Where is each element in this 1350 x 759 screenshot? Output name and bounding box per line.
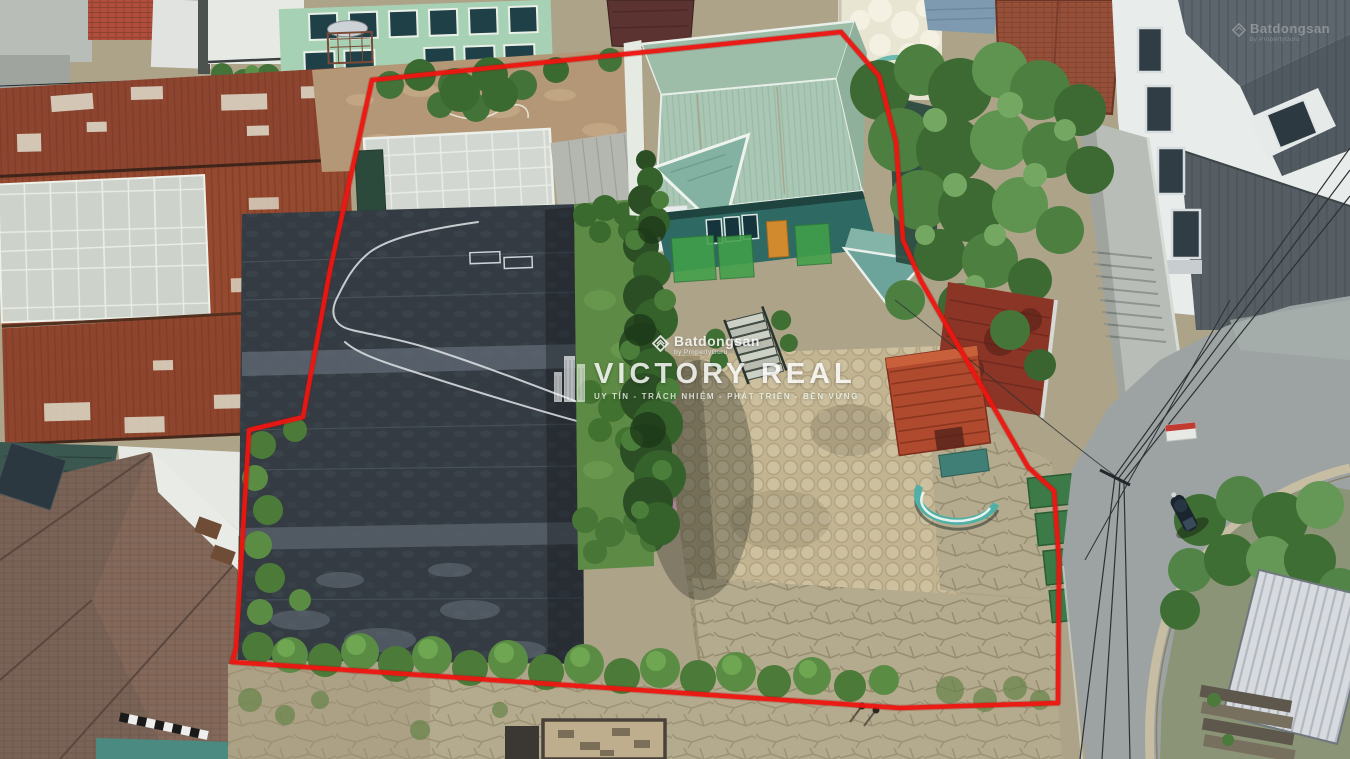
road-sign [1165,422,1197,441]
bluegray-roof-fragment [924,0,1000,34]
aerial-photo-canvas [0,0,1350,759]
red-shed [886,346,991,456]
aerial-property-photo: Batdongsan by PropertyGuru VICTORY REAL … [0,0,1350,759]
orange-door [766,220,788,257]
warehouse-glass-roof [0,175,210,322]
